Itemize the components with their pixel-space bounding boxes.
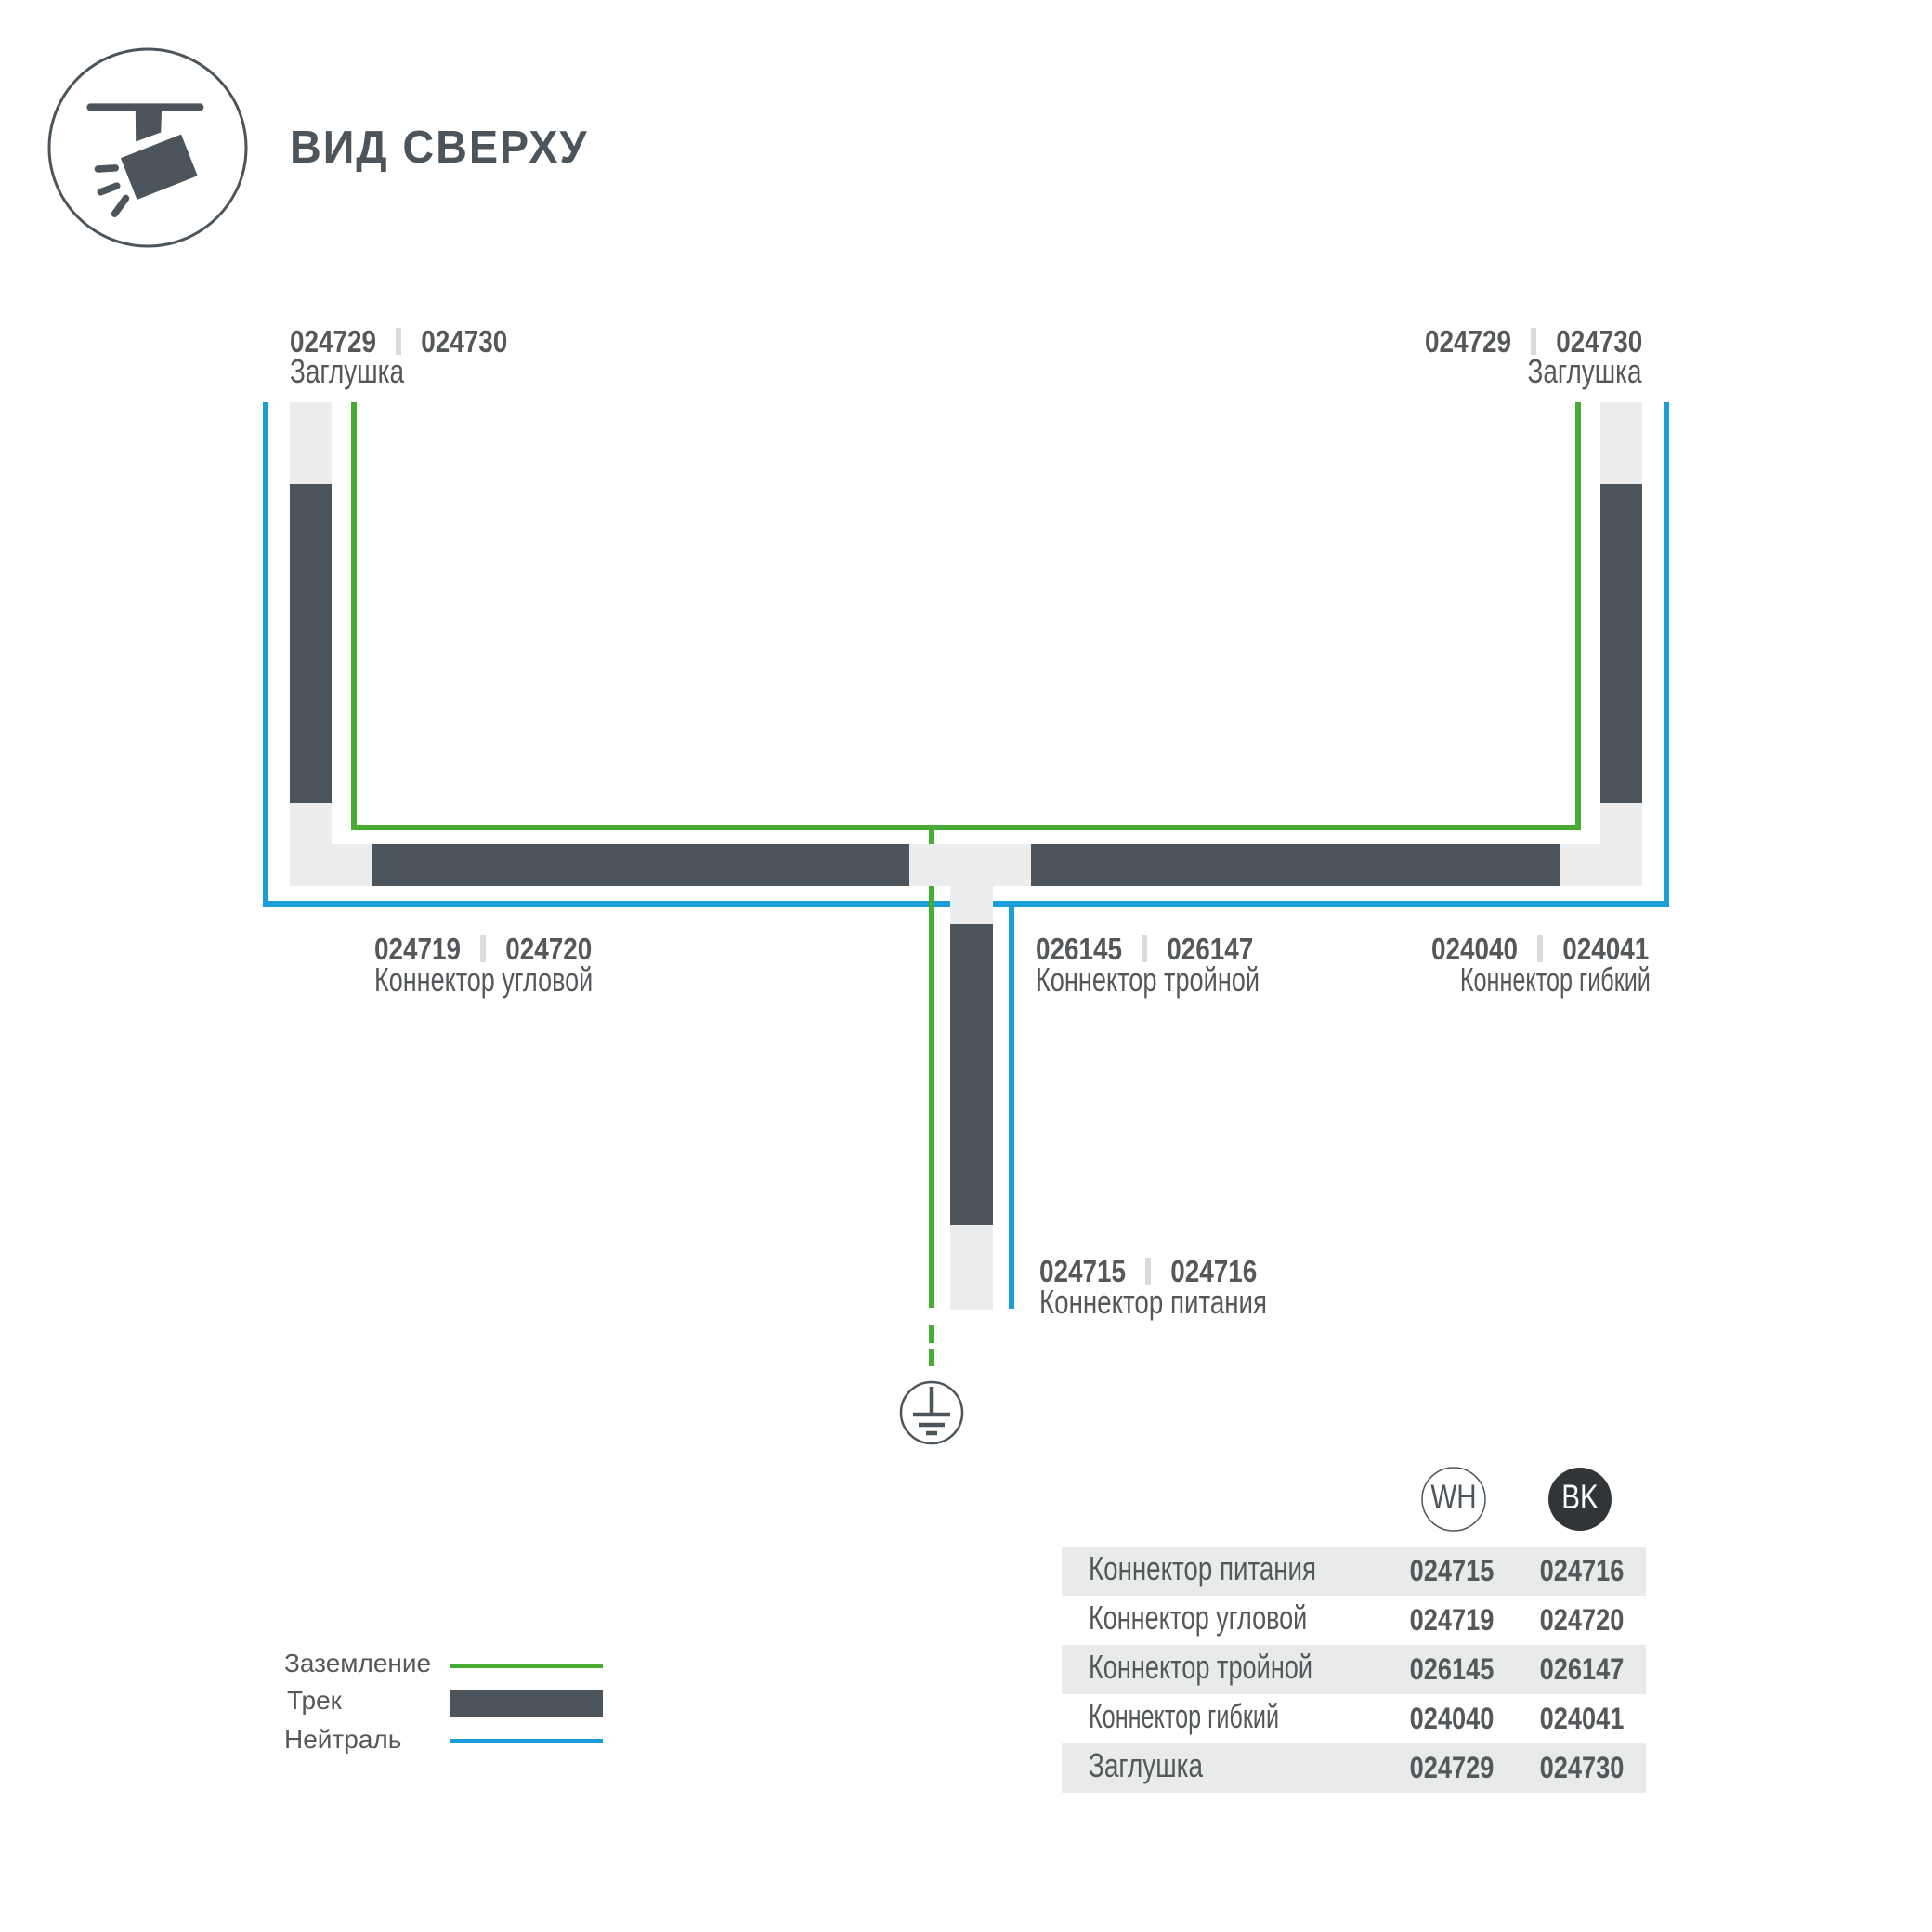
svg-text:BK: BK bbox=[1561, 1479, 1598, 1517]
svg-text:WH: WH bbox=[1430, 1479, 1476, 1517]
